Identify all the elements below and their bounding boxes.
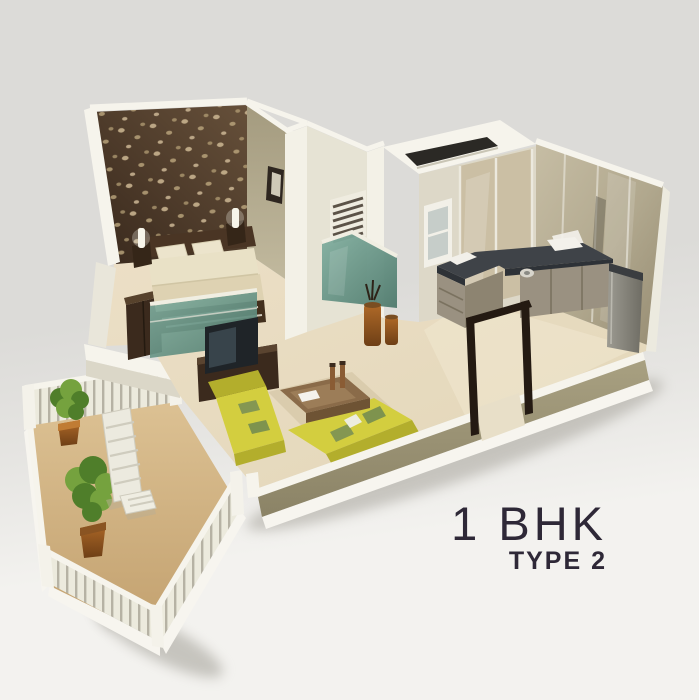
refrigerator — [607, 263, 643, 353]
vase-tall — [364, 304, 381, 346]
vase-tall-rim — [364, 302, 381, 308]
plan-title: 1 BHK — [451, 500, 607, 547]
corner-post — [246, 472, 260, 498]
vase-short — [385, 316, 398, 345]
lamp — [232, 208, 239, 228]
frame-inner — [271, 172, 281, 197]
floorplan-svg — [0, 0, 699, 700]
plan-subtitle: TYPE 2 — [451, 548, 607, 576]
bathroom-wall-left — [285, 126, 307, 340]
rear-window — [424, 198, 452, 268]
candlestick — [330, 366, 335, 390]
floorplan-render: 1 BHK TYPE 2 — [0, 0, 699, 700]
nightstand-left — [132, 228, 152, 268]
candlestick — [340, 364, 345, 388]
candle-top — [340, 361, 346, 365]
shower-enclosure — [322, 232, 397, 308]
title-block: 1 BHK TYPE 2 — [451, 500, 607, 576]
hob-center — [524, 271, 530, 275]
fridge-highlight — [611, 272, 612, 344]
tv-reflection — [209, 327, 236, 368]
vase-short-rim — [385, 315, 398, 320]
lamp — [138, 228, 145, 248]
candle-top — [330, 363, 336, 367]
